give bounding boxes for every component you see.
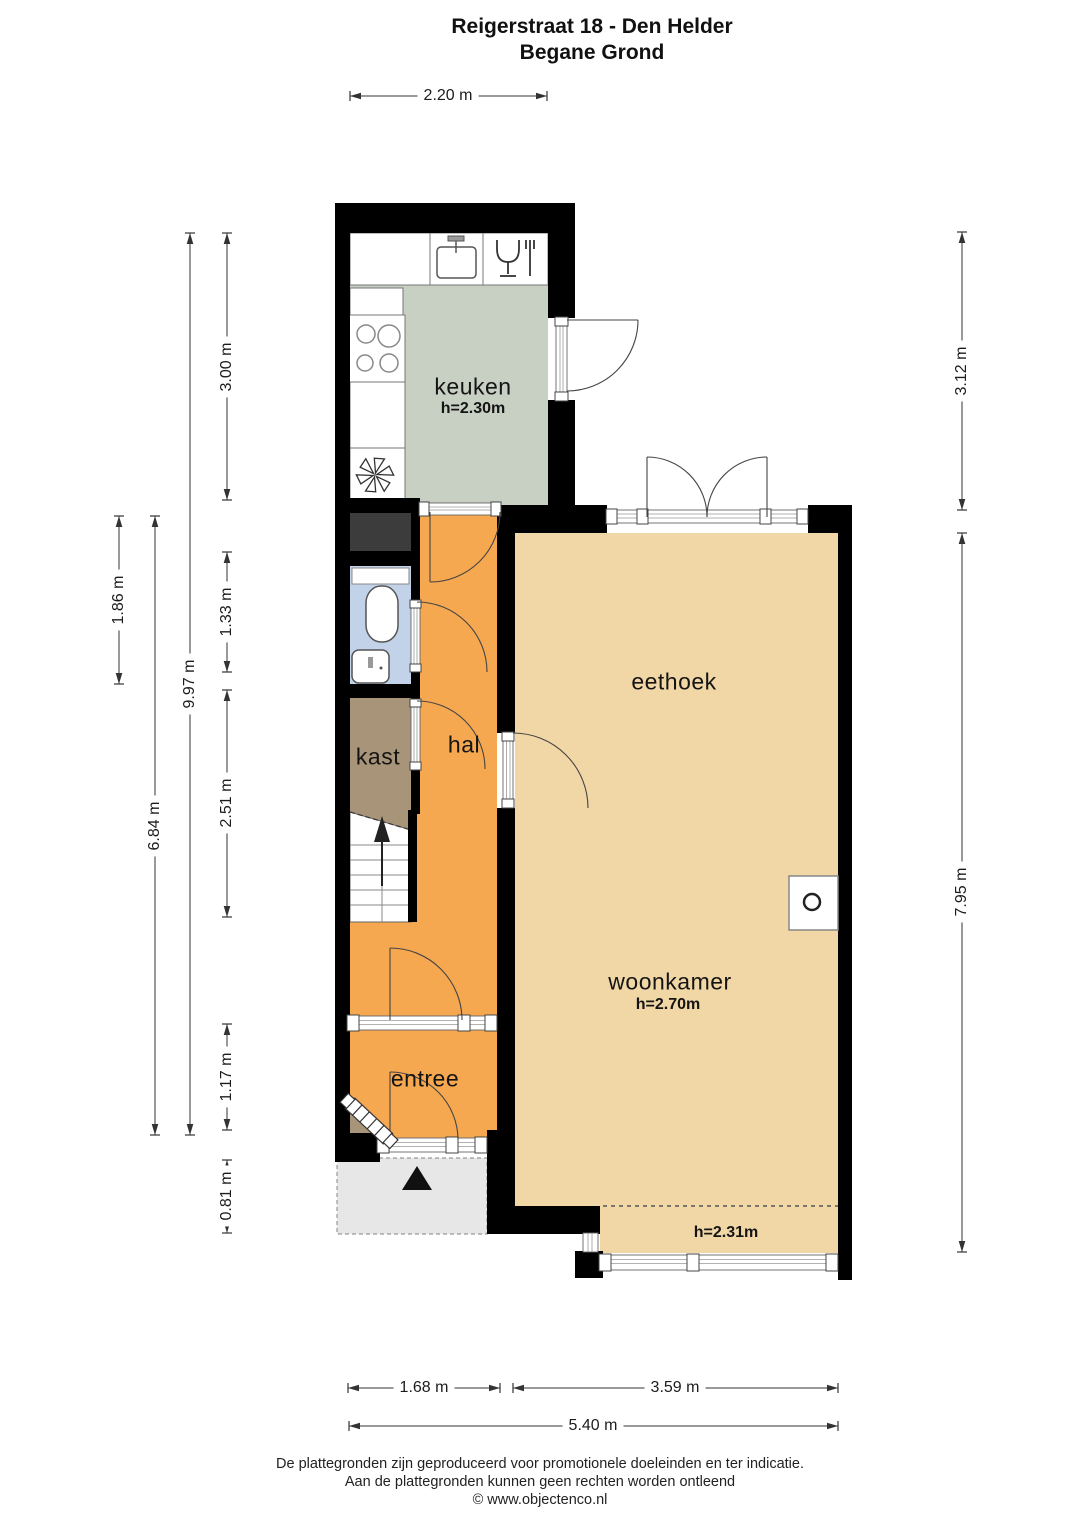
disclaimer-line-1: De plattegronden zijn geproduceerd voor … (0, 1455, 1080, 1473)
dimension-label-entree-depth: 1.17 m (218, 1047, 236, 1108)
door-frame (419, 502, 501, 516)
door-frame (410, 699, 421, 770)
door-swing-icon (567, 320, 638, 391)
window-icon (347, 1015, 497, 1031)
room-label-entree: entree (391, 1066, 459, 1093)
floorplan-page: Reigerstraat 18 - Den Helder Begane Gron… (0, 0, 1080, 1527)
room-label-eethoek: eethoek (631, 669, 716, 696)
dimension-label-living-depth: 7.95 m (953, 862, 971, 923)
dimension-label-toilet-block: 1.86 m (110, 570, 128, 631)
door-frame (555, 317, 568, 401)
room-height-keuken: h=2.30m (441, 400, 505, 418)
dimension-label-left-lower: 6.84 m (146, 796, 164, 857)
dimension-label-living-width: 3.59 m (645, 1379, 706, 1397)
stove-unit (348, 315, 405, 382)
floorplan-canvas (0, 0, 1080, 1527)
room-height-uitbouw: h=2.31m (694, 1224, 758, 1242)
cistern (352, 568, 409, 584)
plan-title: Reigerstraat 18 - Den Helder Begane Gron… (451, 14, 732, 66)
room-label-woonkamer: woonkamer (608, 969, 731, 996)
dimension-label-right-upper: 3.12 m (953, 341, 971, 402)
staircase (350, 812, 411, 922)
window-icon (599, 1254, 838, 1271)
shaft-void (348, 513, 413, 551)
toilet-icon (366, 586, 398, 642)
fireplace-stove-icon (789, 876, 838, 930)
door-frame (502, 732, 514, 808)
dimension-label-hall-depth: 2.51 m (218, 773, 236, 834)
room-height-woonkamer: h=2.70m (636, 996, 700, 1014)
counter-cabinet (350, 382, 405, 448)
door-swing-icon (647, 457, 767, 517)
dimension-label-total-width: 5.40 m (563, 1417, 624, 1435)
counter-cabinet (350, 288, 403, 315)
dimension-label-left-total: 9.97 m (181, 654, 199, 715)
room-label-keuken: keuken (434, 374, 511, 401)
door-frame (410, 600, 421, 672)
dimension-label-toilet-depth: 1.33 m (218, 582, 236, 643)
disclaimer: De plattegronden zijn geproduceerd voor … (0, 1455, 1080, 1509)
window-icon (583, 1233, 598, 1252)
basin-tap (368, 657, 373, 668)
room-label-hal: hal (448, 732, 480, 759)
room-label-kast: kast (356, 744, 400, 771)
dimension-label-kitchen-depth: 3.00 m (218, 337, 236, 398)
dimension-label-kitchen-width: 2.20 m (418, 87, 479, 105)
dimension-label-porch-depth: 0.81 m (218, 1166, 236, 1227)
porch-area (337, 1158, 487, 1234)
disclaimer-line-2: Aan de plattegronden kunnen geen rechten… (0, 1473, 1080, 1491)
title-address: Reigerstraat 18 - Den Helder (451, 14, 732, 40)
title-floor: Begane Grond (451, 40, 732, 66)
dimension-label-hall-width: 1.68 m (394, 1379, 455, 1397)
copyright: © www.objectenco.nl (0, 1491, 1080, 1509)
